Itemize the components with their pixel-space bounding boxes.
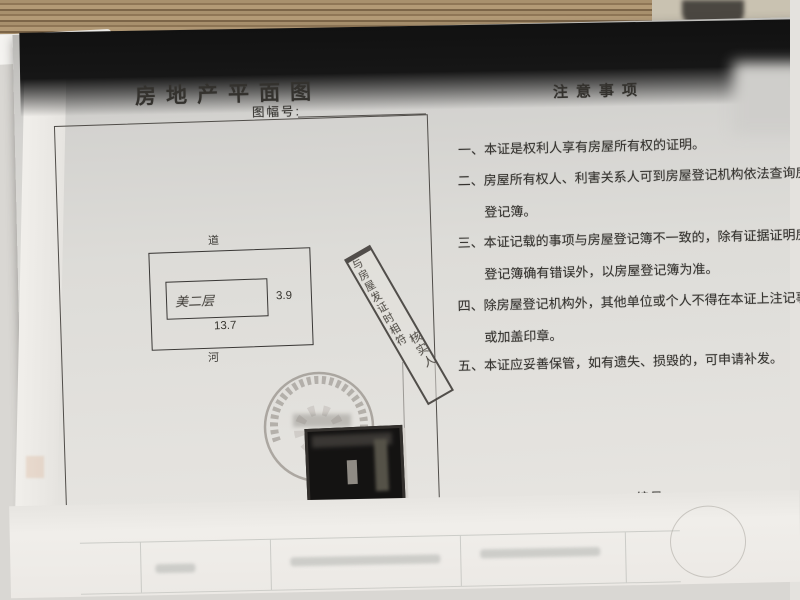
river-label: 河 <box>208 349 220 365</box>
illegible-text-blur <box>480 547 600 559</box>
photo-of-document: 房地产平面图 图幅号: 道 美二层 3.9 13.7 河 比例尺 1: 与房屋发… <box>0 0 800 600</box>
building-structure-label: 美二层 <box>175 290 215 310</box>
photo-wall-detail <box>374 439 389 492</box>
building-outline: 美二层 <box>165 278 268 320</box>
dimension-width: 13.7 <box>214 320 237 333</box>
faint-table-showing-through <box>80 530 681 595</box>
faint-table-column <box>270 540 272 590</box>
faint-ink-mark <box>26 456 44 478</box>
stamp-text-smudge <box>293 414 351 427</box>
faint-table-column <box>460 536 462 586</box>
underlying-sheet <box>9 490 800 599</box>
dimension-depth: 3.9 <box>276 290 292 303</box>
notice-item-2: 二、房屋所有权人、利害关系人可到房屋登记机构依法查询房屋登记簿。 <box>457 157 800 230</box>
faint-stamp-impression <box>669 505 746 579</box>
pasted-building-photo <box>304 425 405 507</box>
faint-table-column <box>140 543 142 593</box>
illegible-text-blur <box>290 554 440 566</box>
notices-title: 注意事项 <box>553 79 646 103</box>
illegible-text-blur <box>155 563 195 573</box>
faint-table-column <box>625 532 627 582</box>
road-label: 道 <box>208 232 220 248</box>
photo-doorway <box>347 460 358 484</box>
notice-item-3: 三、本证记载的事项与房屋登记簿不一致的，除有证据证明房屋登记簿确有错误外，以房屋… <box>457 219 800 292</box>
